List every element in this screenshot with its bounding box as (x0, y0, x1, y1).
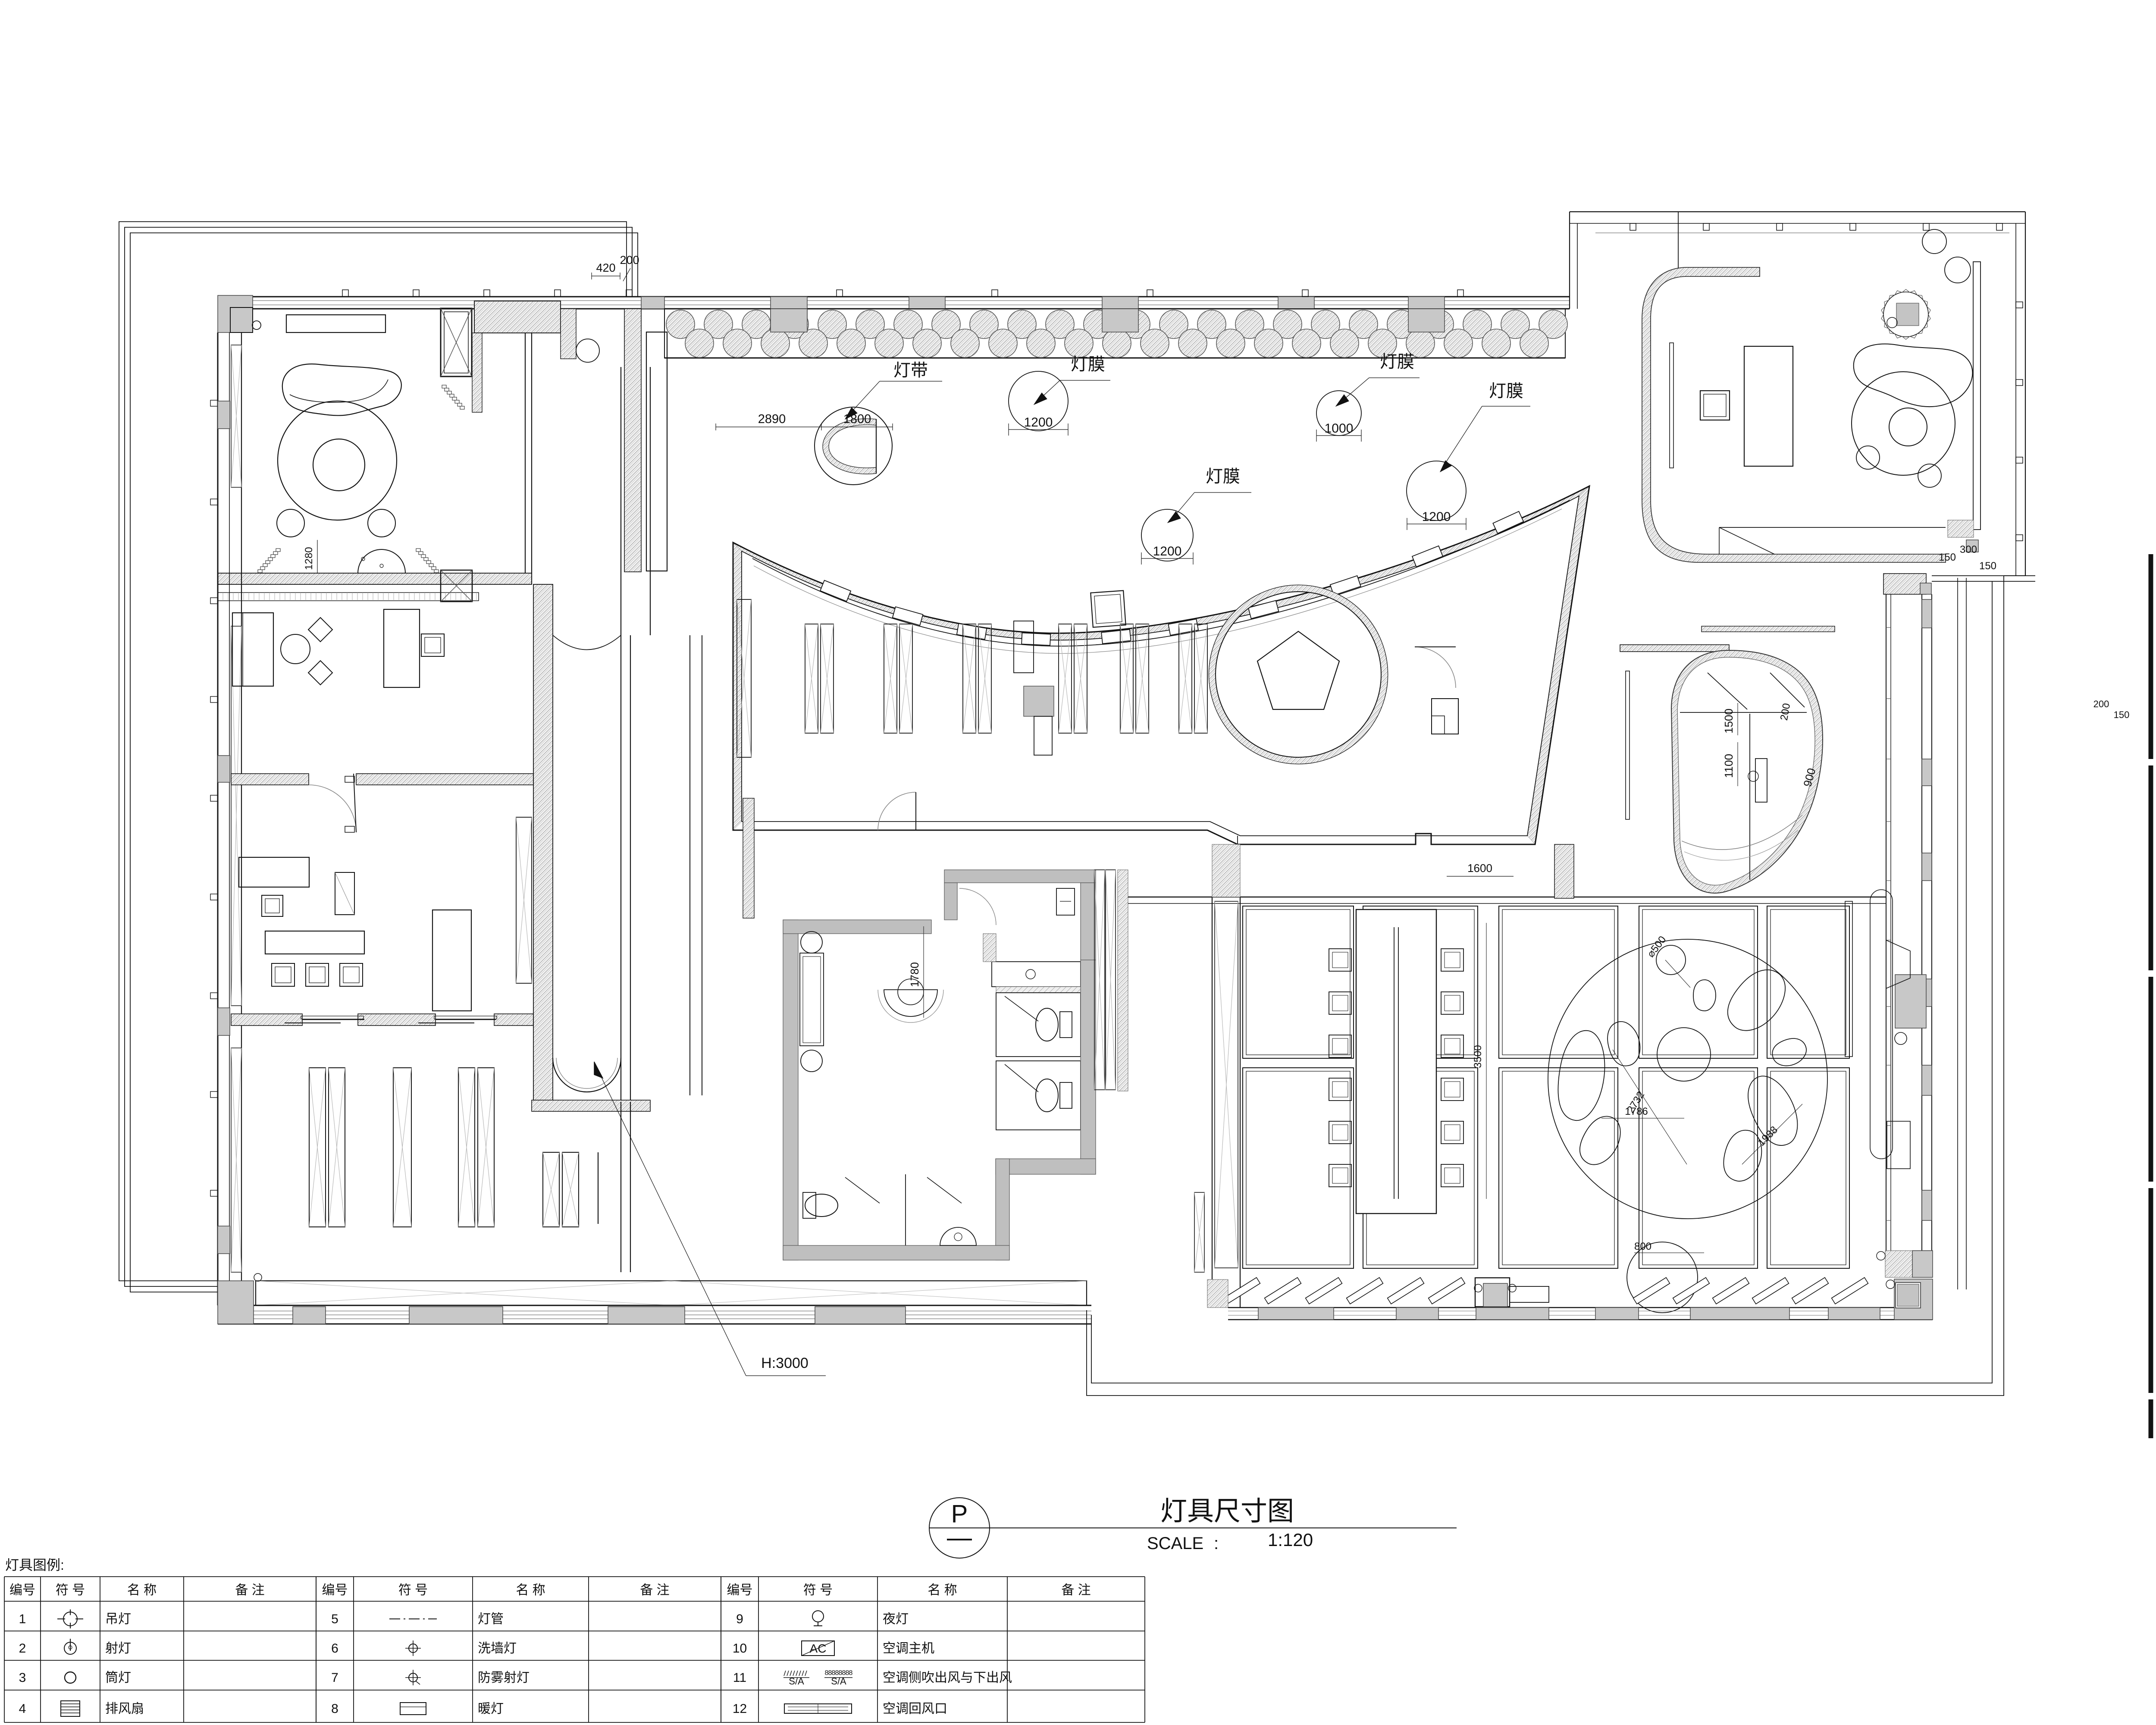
svg-text:300: 300 (1960, 544, 1977, 555)
svg-text::: : (1214, 1534, 1219, 1553)
svg-text:洗墙灯: 洗墙灯 (478, 1641, 517, 1656)
svg-text:排风扇: 排风扇 (105, 1702, 144, 1716)
svg-text:编号: 编号 (9, 1583, 35, 1597)
svg-text:编号: 编号 (322, 1583, 348, 1597)
svg-text:150: 150 (2114, 709, 2130, 720)
svg-text:3500: 3500 (1472, 1045, 1484, 1068)
svg-text:200: 200 (2093, 699, 2109, 709)
svg-text:2890: 2890 (758, 412, 786, 426)
svg-text:150: 150 (1979, 560, 1996, 572)
svg-text:1200: 1200 (1153, 544, 1182, 558)
svg-text:1: 1 (19, 1612, 26, 1626)
svg-text:1786: 1786 (1625, 1106, 1648, 1117)
svg-text:名 称: 名 称 (516, 1583, 545, 1597)
svg-text:灯膜: 灯膜 (1206, 467, 1240, 486)
svg-text:符 号: 符 号 (803, 1583, 833, 1597)
svg-text:空调主机: 空调主机 (883, 1641, 934, 1656)
svg-text:1200: 1200 (1024, 415, 1053, 430)
svg-text:灯膜: 灯膜 (1380, 352, 1414, 371)
svg-text:备 注: 备 注 (235, 1583, 264, 1597)
svg-text:S/A: S/A (831, 1676, 846, 1687)
svg-text:1:120: 1:120 (1268, 1530, 1313, 1550)
svg-text:1800: 1800 (843, 412, 871, 426)
svg-text:150: 150 (1939, 552, 1956, 563)
svg-text:灯膜: 灯膜 (1489, 382, 1523, 401)
svg-text:射灯: 射灯 (105, 1641, 131, 1656)
svg-text:吊灯: 吊灯 (105, 1612, 131, 1626)
svg-text:暖灯: 暖灯 (478, 1702, 504, 1716)
svg-text:备 注: 备 注 (640, 1583, 669, 1597)
svg-text:SCALE: SCALE (1147, 1534, 1203, 1553)
svg-text:5: 5 (331, 1612, 338, 1626)
svg-text:800: 800 (1634, 1241, 1651, 1252)
svg-text:P: P (951, 1500, 968, 1528)
svg-text:空调回风口: 空调回风口 (883, 1702, 947, 1716)
svg-text:4: 4 (19, 1702, 26, 1716)
svg-text:空调侧吹出风与下出风: 空调侧吹出风与下出风 (883, 1671, 1012, 1685)
svg-text:420: 420 (596, 261, 615, 274)
svg-text:1000: 1000 (1325, 421, 1354, 436)
svg-text:1600: 1600 (1467, 862, 1492, 875)
svg-text:编号: 编号 (727, 1583, 753, 1597)
svg-text:名 称: 名 称 (127, 1583, 157, 1597)
svg-text:1280: 1280 (303, 547, 315, 570)
svg-text:10: 10 (733, 1641, 747, 1656)
svg-text:筒灯: 筒灯 (105, 1671, 131, 1685)
svg-text:H:3000: H:3000 (761, 1355, 808, 1371)
svg-text:灯膜: 灯膜 (1071, 355, 1105, 374)
svg-text:11: 11 (733, 1671, 746, 1685)
svg-text:夜灯: 夜灯 (883, 1612, 909, 1626)
svg-text:9: 9 (736, 1612, 743, 1626)
svg-text:12: 12 (733, 1702, 747, 1716)
svg-text:灯带: 灯带 (893, 361, 928, 380)
svg-text:3: 3 (19, 1671, 26, 1685)
svg-text:1100: 1100 (1722, 754, 1735, 778)
svg-text:灯具图例:: 灯具图例: (5, 1557, 64, 1573)
svg-text:S/A: S/A (789, 1676, 804, 1687)
svg-text:7: 7 (331, 1671, 338, 1685)
svg-text:灯具尺寸图: 灯具尺寸图 (1160, 1496, 1294, 1526)
svg-text:名 称: 名 称 (928, 1583, 957, 1597)
svg-text:1500: 1500 (1722, 709, 1735, 734)
svg-text:符 号: 符 号 (56, 1583, 85, 1597)
svg-text:8: 8 (849, 1669, 853, 1677)
svg-text:8: 8 (331, 1702, 338, 1716)
svg-text:备 注: 备 注 (1061, 1583, 1091, 1597)
svg-text:2: 2 (19, 1641, 26, 1656)
svg-text:6: 6 (331, 1641, 338, 1656)
svg-text:1780: 1780 (908, 962, 921, 987)
svg-text:200: 200 (620, 254, 639, 267)
svg-text:1200: 1200 (1422, 510, 1451, 524)
svg-text:灯管: 灯管 (478, 1612, 504, 1626)
svg-text:符 号: 符 号 (398, 1583, 428, 1597)
svg-text:防雾射灯: 防雾射灯 (478, 1671, 530, 1685)
